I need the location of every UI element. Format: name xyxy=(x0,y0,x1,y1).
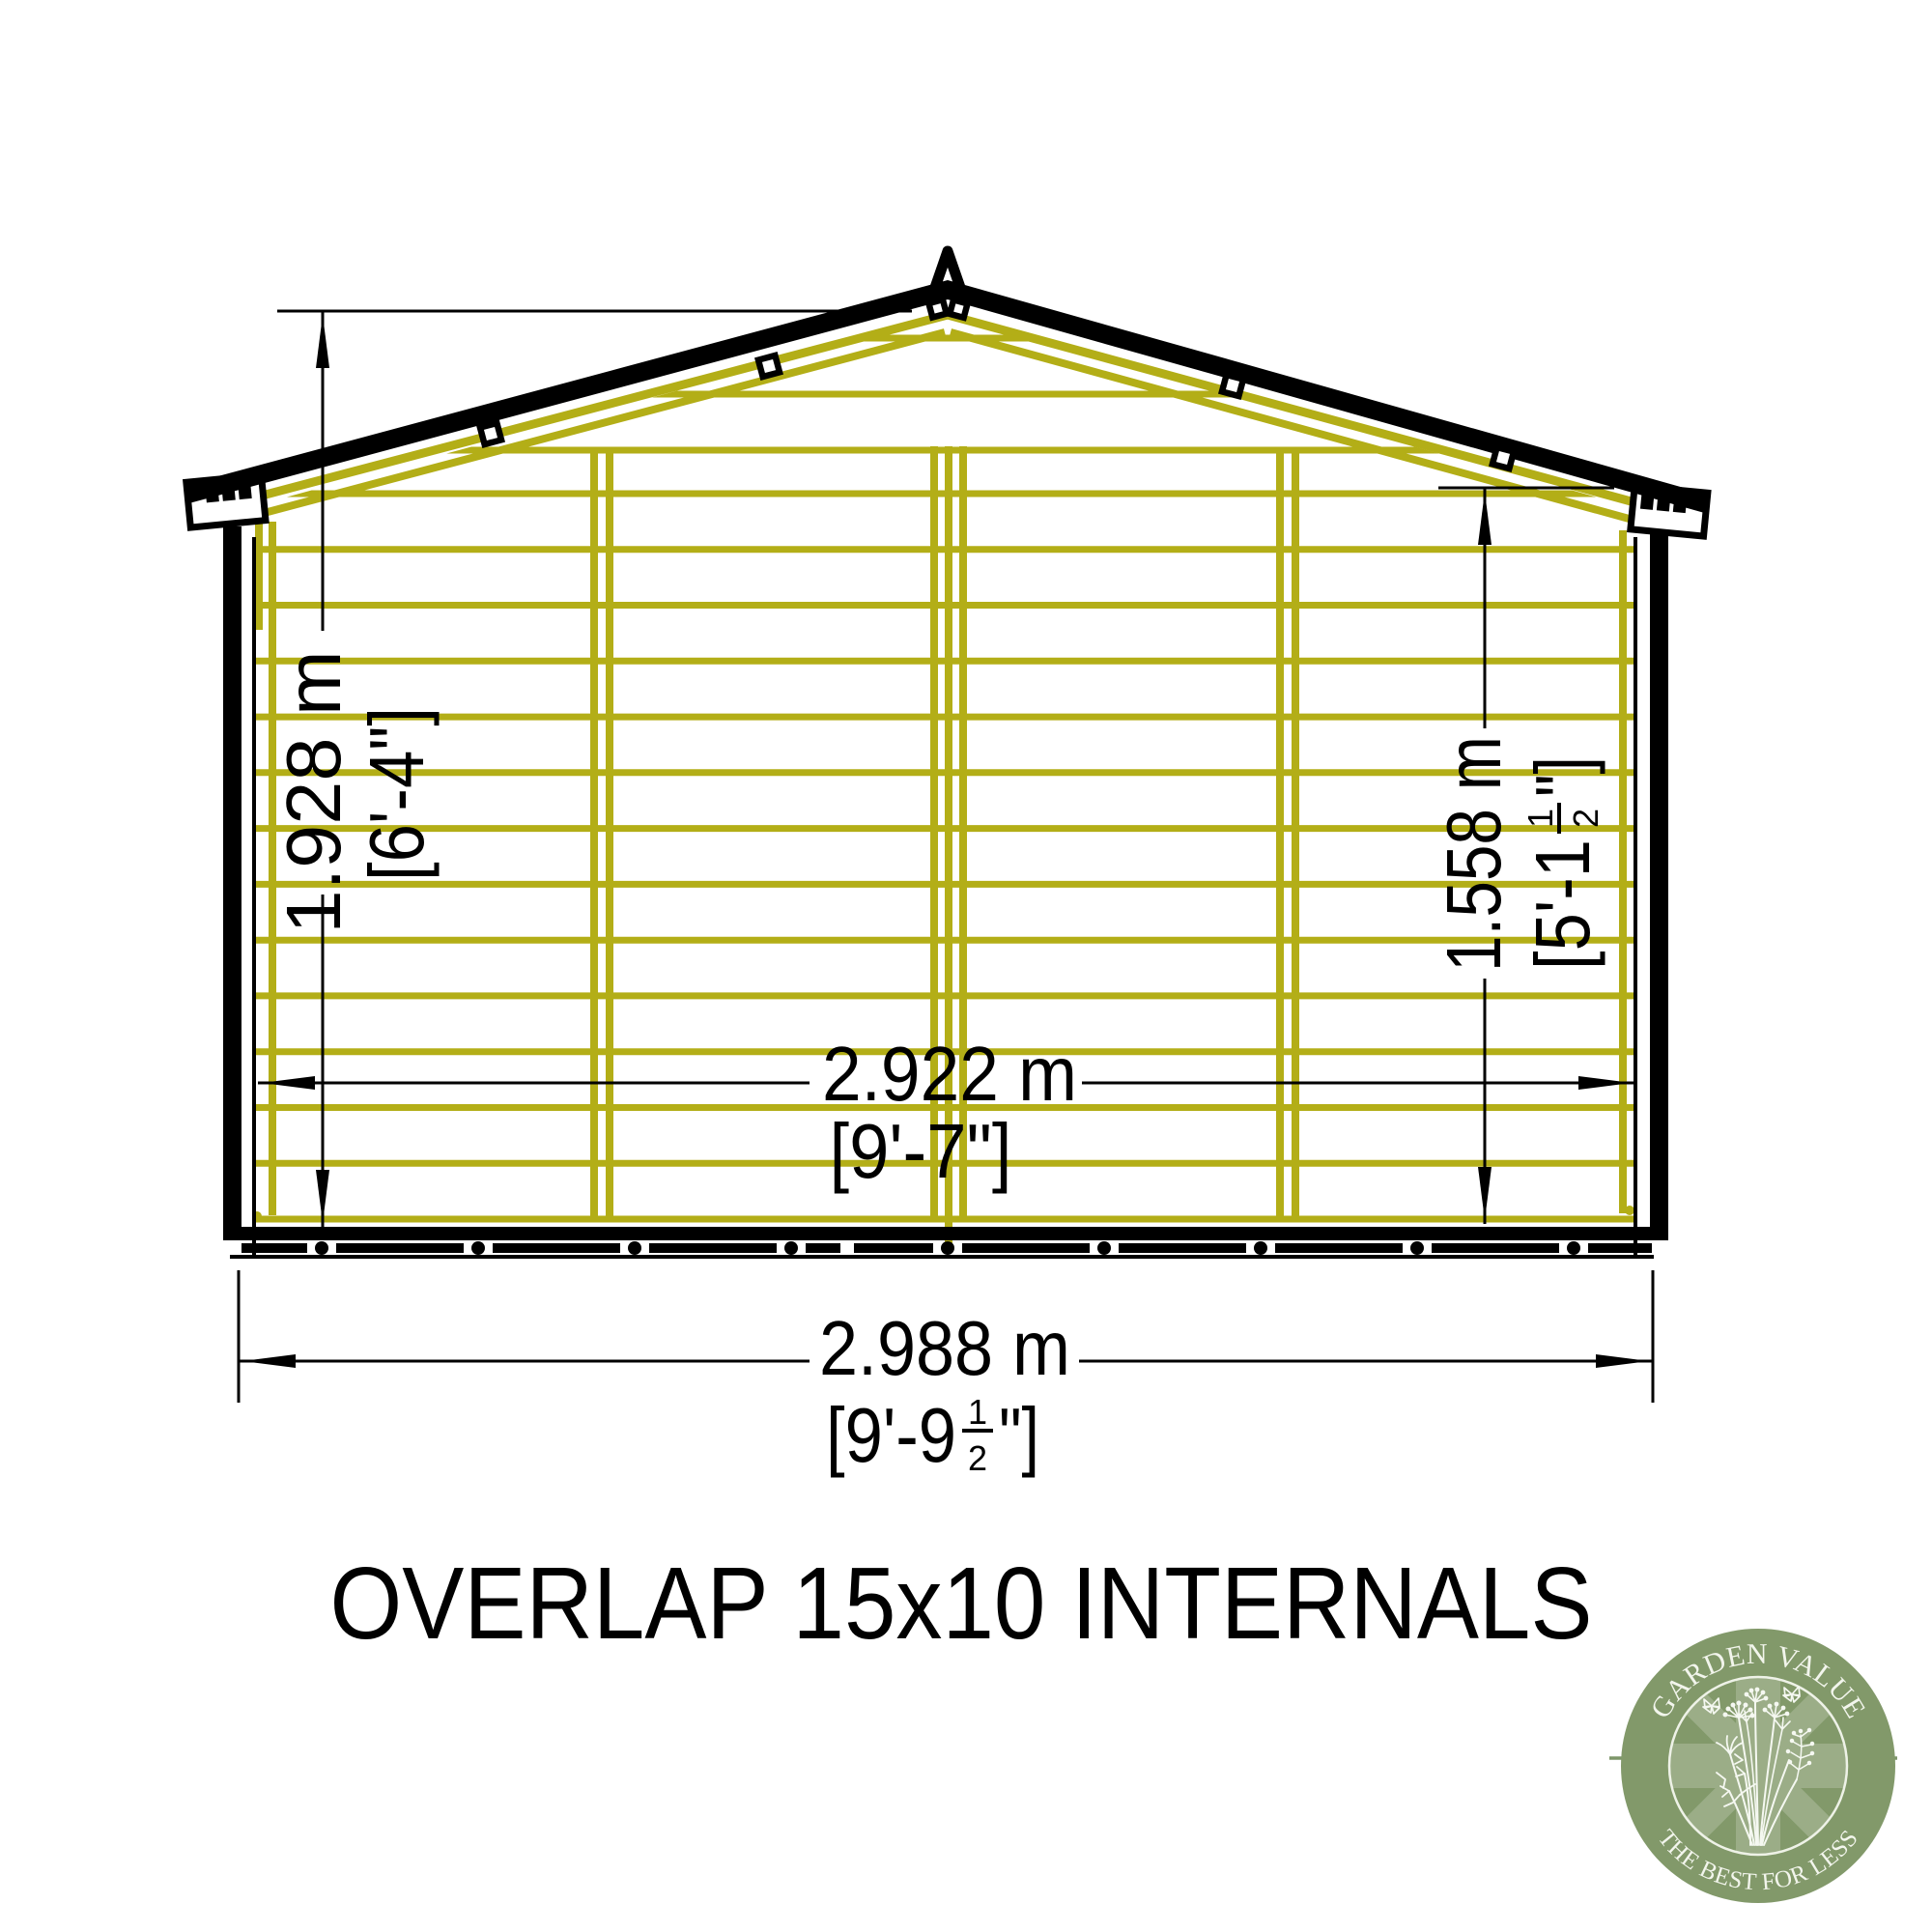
svg-text:1: 1 xyxy=(1520,809,1560,828)
svg-text:2.988 m: 2.988 m xyxy=(819,1305,1070,1391)
svg-text:[5'-1: [5'-1 xyxy=(1520,839,1605,970)
svg-text:"]: "] xyxy=(1520,756,1605,797)
svg-text:[9'-9: [9'-9 xyxy=(826,1392,956,1478)
svg-text:[6'-4"]: [6'-4"] xyxy=(354,707,440,881)
svg-text:2: 2 xyxy=(968,1438,987,1478)
svg-text:OVERLAP 15x10 INTERNALS: OVERLAP 15x10 INTERNALS xyxy=(330,1547,1593,1661)
svg-text:[9'-7"]: [9'-7"] xyxy=(830,1108,1012,1194)
svg-text:2: 2 xyxy=(1566,809,1605,828)
svg-text:"]: "] xyxy=(999,1392,1039,1478)
svg-text:1: 1 xyxy=(968,1392,987,1432)
svg-text:1.558 m: 1.558 m xyxy=(1431,736,1517,972)
svg-text:1.928 m: 1.928 m xyxy=(270,651,356,934)
svg-text:2.922 m: 2.922 m xyxy=(822,1031,1077,1117)
